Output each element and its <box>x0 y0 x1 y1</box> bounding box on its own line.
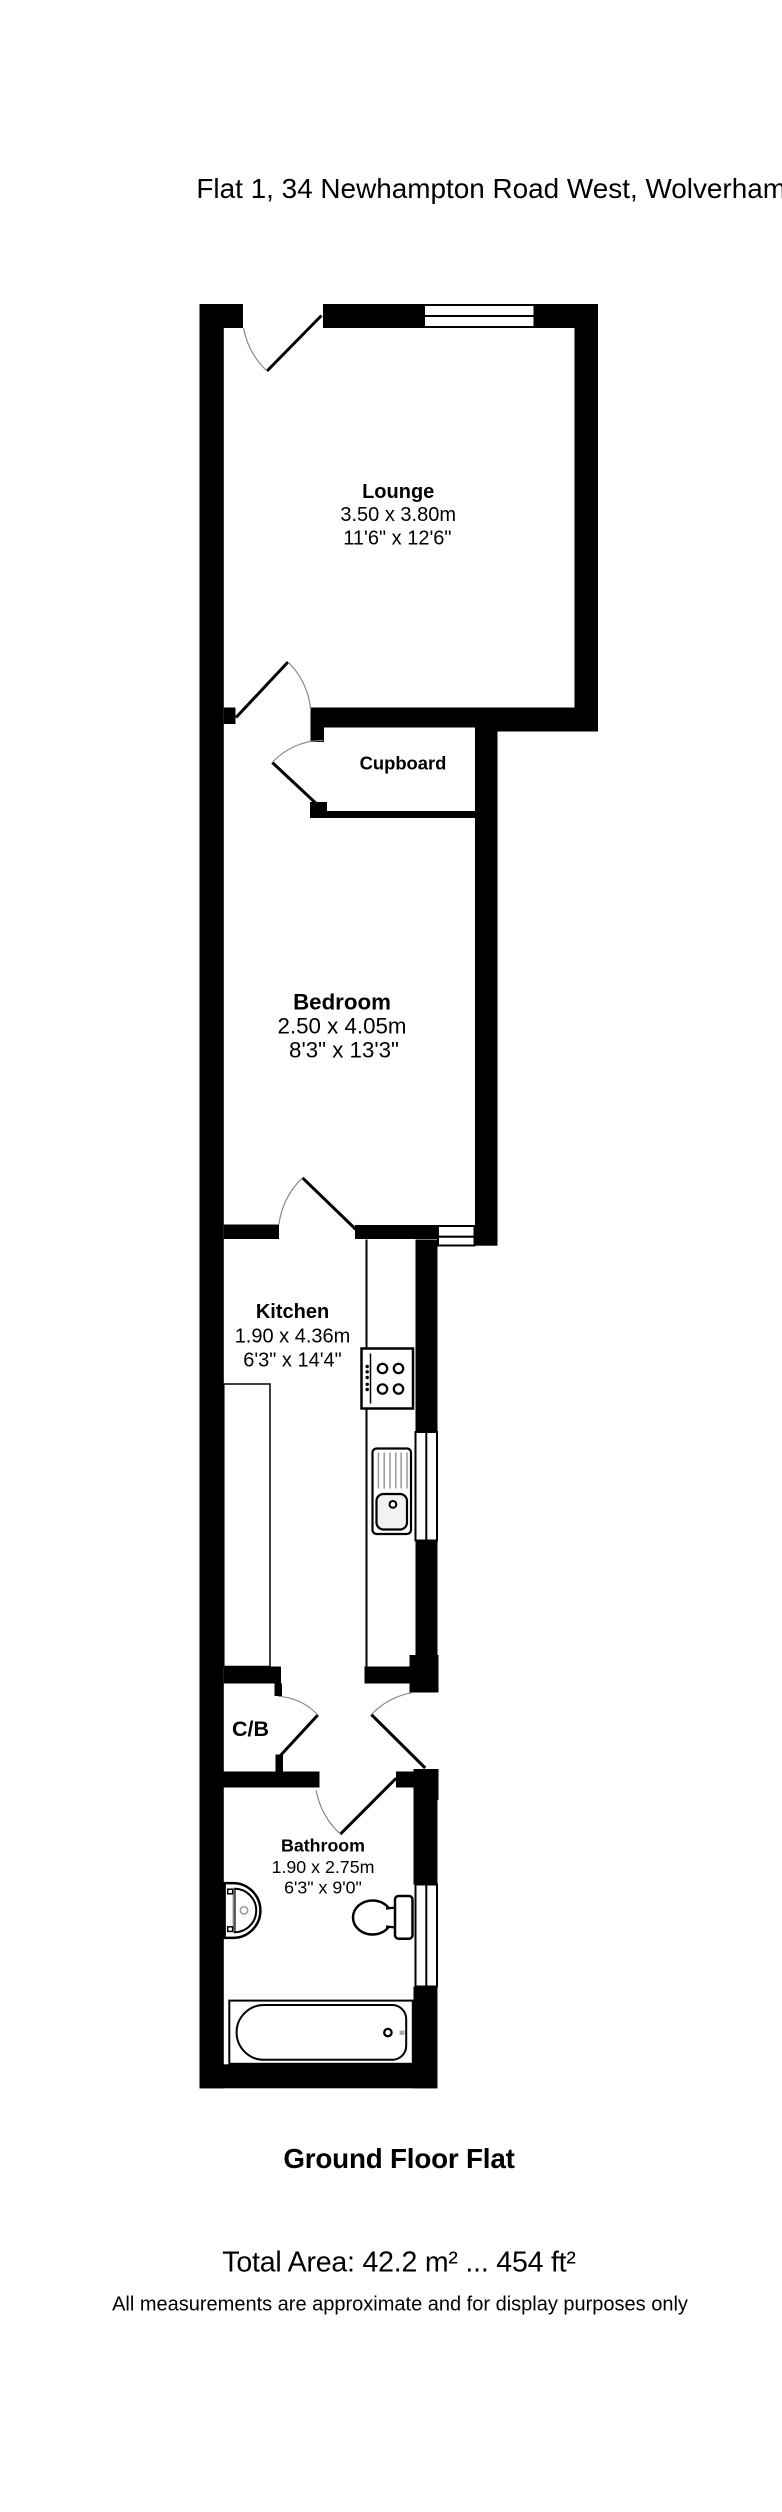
svg-text:2.50 x 4.05m: 2.50 x 4.05m <box>278 1014 407 1039</box>
svg-text:6'3" x 9'0": 6'3" x 9'0" <box>284 1878 362 1898</box>
svg-text:Ground Floor Flat: Ground Floor Flat <box>283 2143 514 2174</box>
svg-text:Lounge: Lounge <box>362 481 434 503</box>
svg-text:Bedroom: Bedroom <box>293 990 391 1015</box>
svg-text:Cupboard: Cupboard <box>360 753 447 774</box>
svg-text:11'6" x 12'6": 11'6" x 12'6" <box>343 527 451 549</box>
svg-text:8'3" x 13'3": 8'3" x 13'3" <box>289 1038 399 1063</box>
svg-text:All measurements are approxima: All measurements are approximate and for… <box>112 2294 688 2316</box>
svg-text:Bathroom: Bathroom <box>281 1836 365 1856</box>
svg-text:1.90 x 2.75m: 1.90 x 2.75m <box>272 1857 375 1877</box>
svg-text:Kitchen: Kitchen <box>256 1301 329 1323</box>
svg-text:6'3" x 14'4": 6'3" x 14'4" <box>243 1350 342 1372</box>
svg-text:C/B: C/B <box>232 1717 269 1741</box>
svg-text:3.50 x 3.80m: 3.50 x 3.80m <box>340 504 456 526</box>
svg-text:1.90 x 4.36m: 1.90 x 4.36m <box>235 1325 351 1347</box>
svg-text:Flat 1, 34 Newhampton Road Wes: Flat 1, 34 Newhampton Road West, Wolverh… <box>196 173 782 204</box>
svg-text:Total Area: 42.2 m² ... 454 ft: Total Area: 42.2 m² ... 454 ft² <box>222 2247 575 2279</box>
